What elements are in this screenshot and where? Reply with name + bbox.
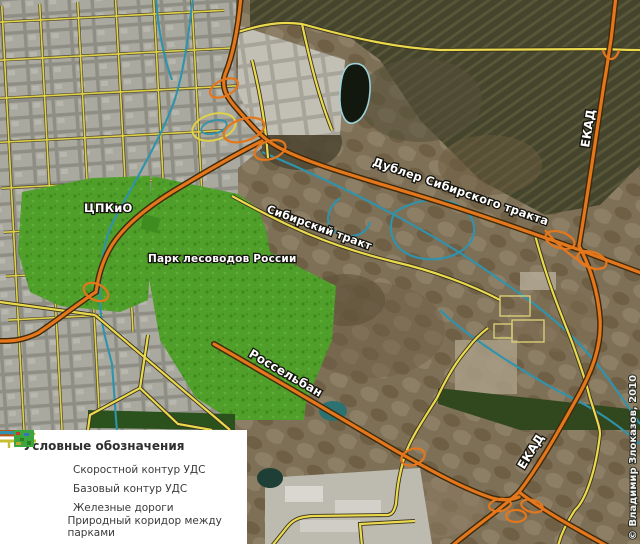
label-park-lesovodov: Парк лесоводов России bbox=[148, 253, 297, 265]
terrain-patch bbox=[358, 58, 482, 142]
legend-item-base-contour: Базовый контур УДС bbox=[23, 479, 247, 498]
legend-title: Условные обозначения bbox=[23, 439, 247, 453]
map-legend: Условные обозначения Скоростной контур У… bbox=[0, 430, 247, 544]
legend-item-label: Железные дороги bbox=[73, 502, 174, 514]
legend-item-label: Скоростной контур УДС bbox=[73, 464, 205, 476]
industrial-building bbox=[335, 500, 381, 514]
village-patch bbox=[455, 340, 517, 394]
label-cpkio: ЦПКиО bbox=[84, 201, 133, 215]
pond bbox=[257, 468, 283, 488]
legend-item-nature-corridor: Природный коридор между парками bbox=[23, 517, 247, 536]
legend-item-speed-contour: Скоростной контур УДС bbox=[23, 460, 247, 479]
copyright-text: © Владимир Злоказов, 2010 bbox=[628, 375, 639, 540]
satellite-map-screenshot: ЦПКиО Парк лесоводов России Сибирский тр… bbox=[0, 0, 640, 544]
legend-item-label: Природный коридор между парками bbox=[68, 515, 248, 539]
legend-item-label: Базовый контур УДС bbox=[73, 483, 187, 495]
industrial-building bbox=[300, 520, 360, 532]
industrial-building bbox=[285, 486, 323, 502]
